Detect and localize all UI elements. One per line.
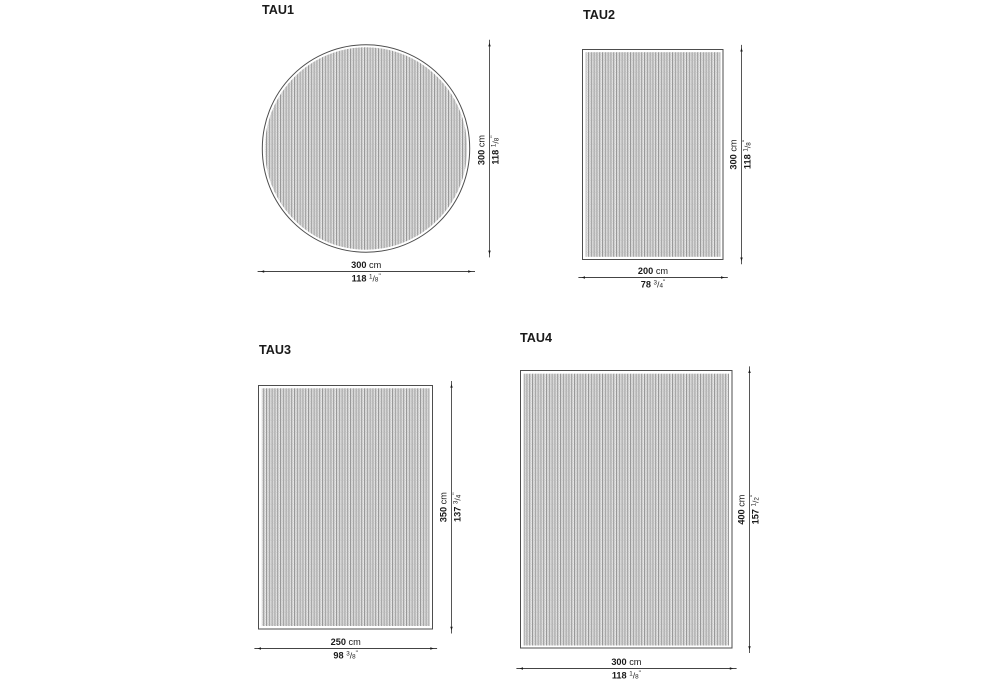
svg-text:350 cm: 350 cm — [439, 492, 449, 522]
svg-text:250 cm: 250 cm — [331, 637, 361, 647]
svg-text:300 cm: 300 cm — [729, 139, 739, 169]
svg-text:TAU1: TAU1 — [262, 3, 294, 17]
svg-text:TAU4: TAU4 — [520, 331, 552, 345]
svg-text:200 cm: 200 cm — [638, 266, 668, 276]
svg-text:TAU3: TAU3 — [259, 343, 291, 357]
svg-text:300 cm: 300 cm — [611, 657, 641, 667]
svg-text:TAU2: TAU2 — [583, 8, 615, 22]
svg-text:300 cm: 300 cm — [351, 260, 381, 270]
svg-text:300 cm: 300 cm — [477, 135, 487, 165]
svg-text:78 3/4": 78 3/4" — [641, 279, 666, 289]
svg-text:400 cm: 400 cm — [737, 494, 747, 524]
svg-text:98 3/8": 98 3/8" — [333, 650, 358, 660]
